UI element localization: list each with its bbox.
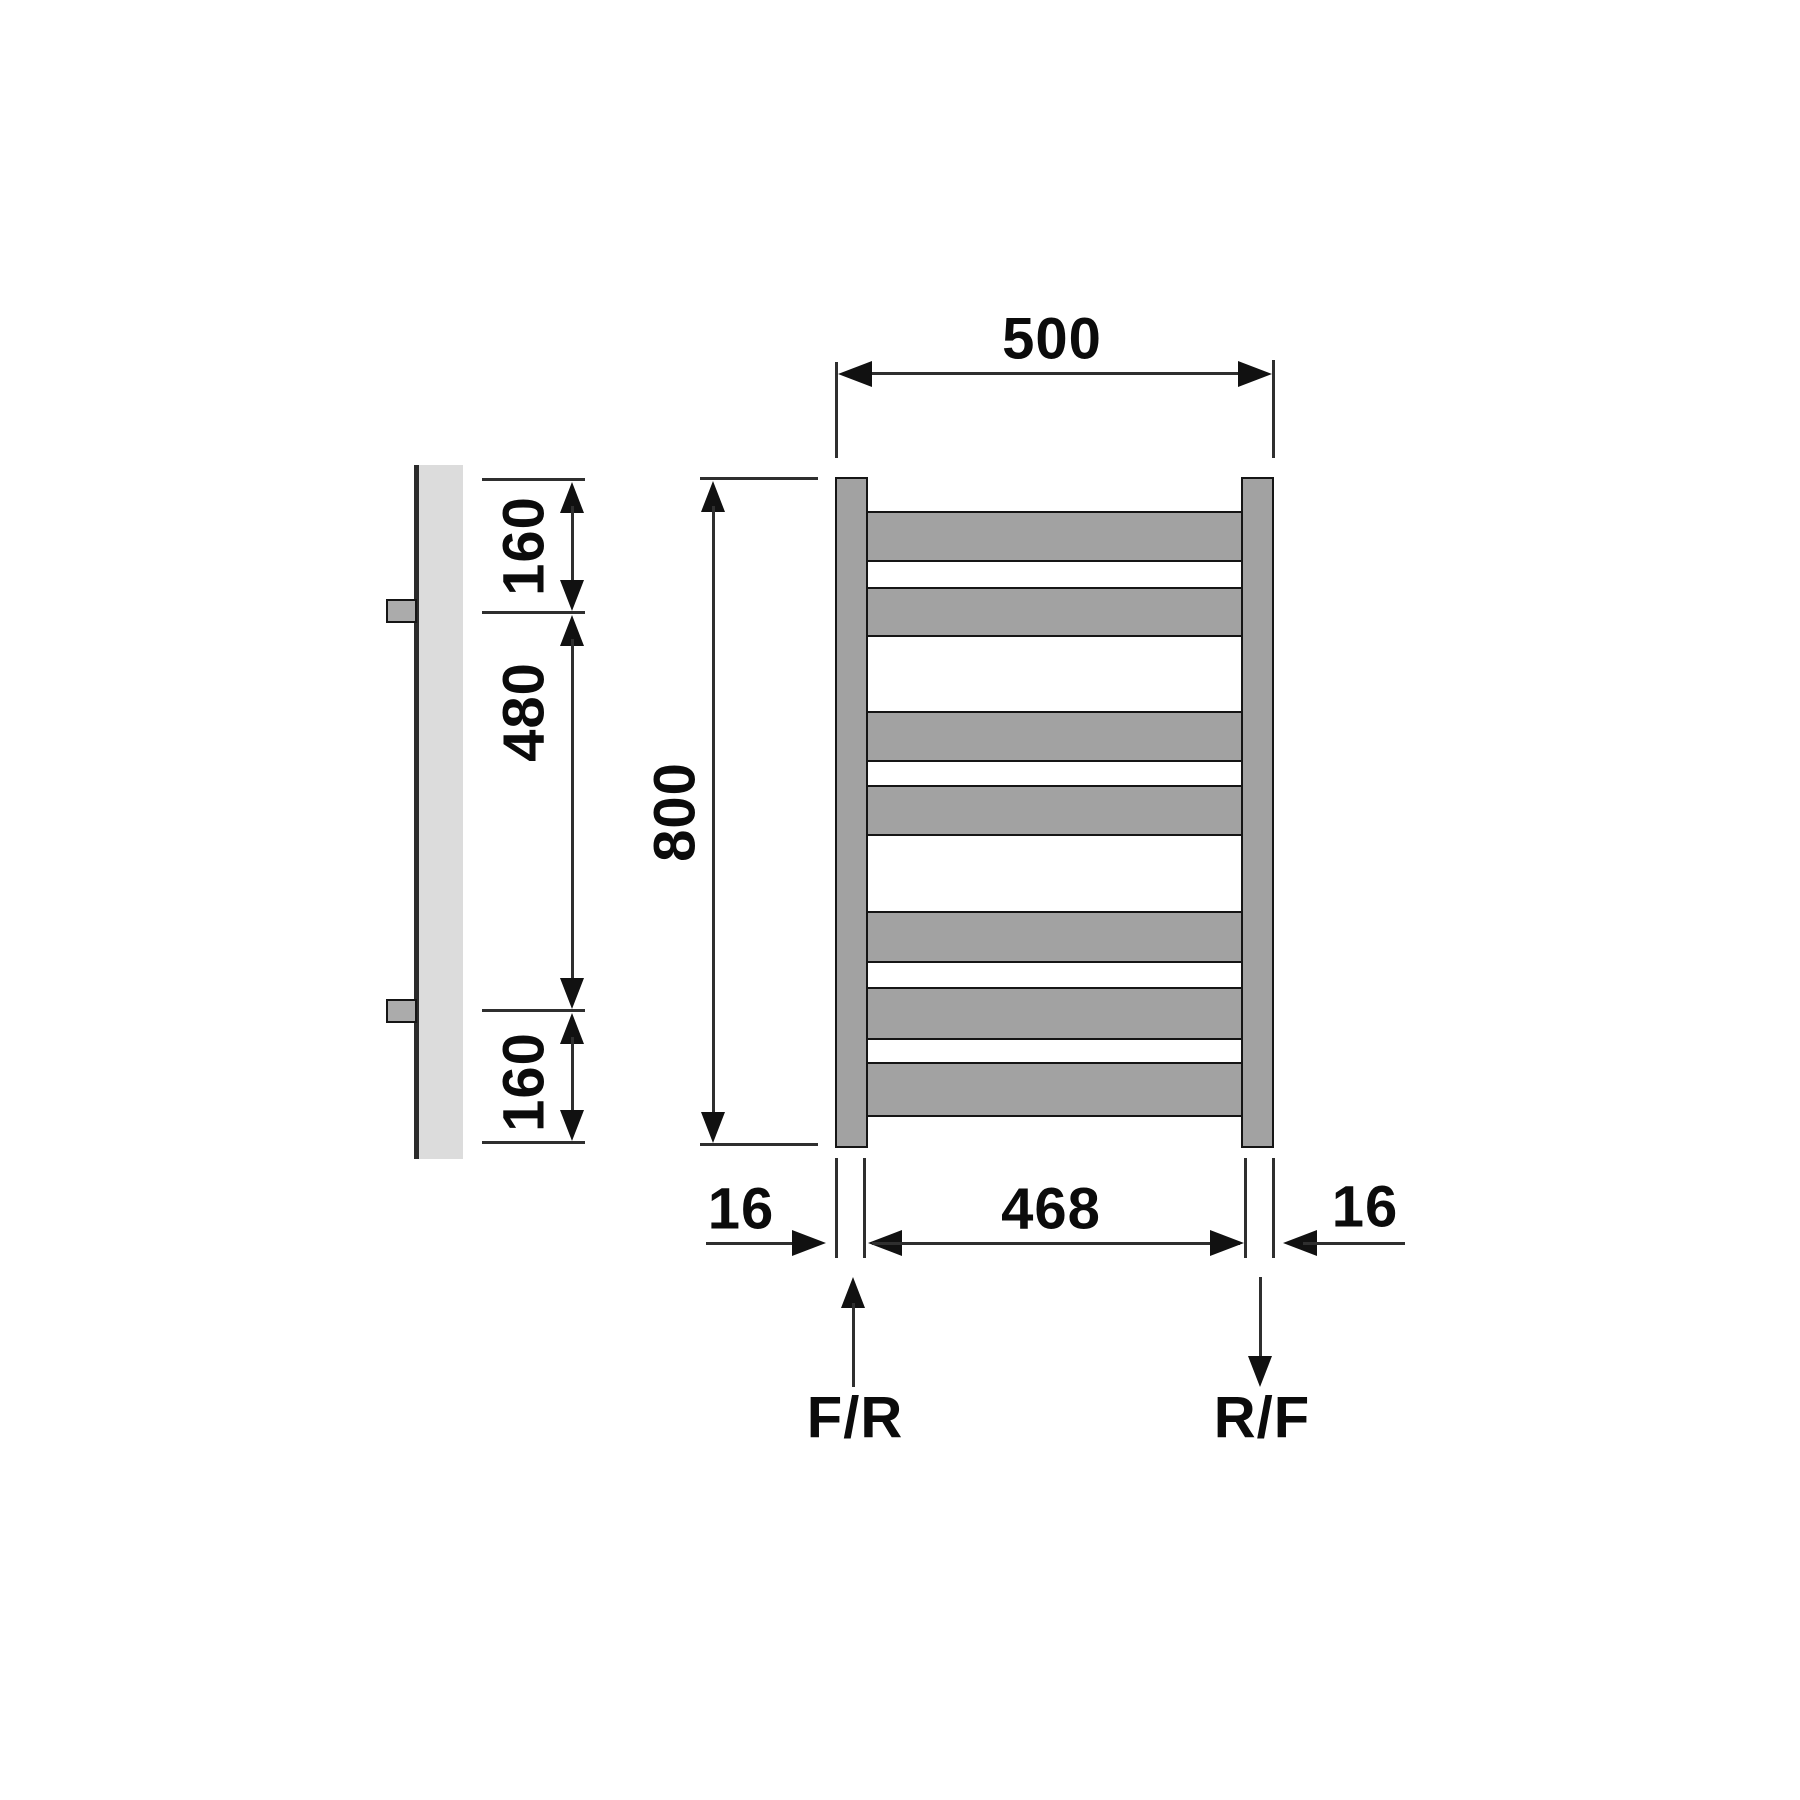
rung — [866, 711, 1243, 762]
extension-line — [1272, 1158, 1275, 1258]
extension-line — [863, 1158, 866, 1258]
dim-16-right-label: 16 — [1332, 1174, 1399, 1241]
rung — [866, 785, 1243, 836]
dim-tick — [700, 1143, 818, 1146]
dim-arrow-shaft — [712, 506, 715, 1118]
dim-arrow-shaft — [571, 1037, 574, 1113]
return-arrow-shaft — [1259, 1277, 1262, 1361]
flow-left-label: F/R — [807, 1385, 903, 1452]
radiator-dimension-drawing: 160 480 160 500 — [0, 0, 1800, 1800]
dim-tick — [482, 478, 585, 481]
dim-160-top-label: 160 — [491, 496, 558, 596]
arrowhead-right-icon — [1210, 1230, 1244, 1256]
arrowhead-down-icon — [560, 978, 584, 1009]
rung — [866, 587, 1243, 637]
dim-16-left-label: 16 — [708, 1176, 775, 1243]
dim-arrow-shaft — [571, 639, 574, 985]
arrowhead-down-icon — [560, 1110, 584, 1141]
left-rail — [835, 477, 868, 1148]
flow-arrow-shaft — [852, 1303, 855, 1387]
arrowhead-down-icon — [1248, 1356, 1272, 1387]
rung — [866, 987, 1243, 1040]
flow-right-label: R/F — [1214, 1385, 1310, 1452]
arrowhead-down-icon — [701, 1112, 725, 1143]
dim-arrow-shaft — [571, 506, 574, 588]
dim-500-label: 500 — [1002, 306, 1102, 373]
arrowhead-right-icon — [1238, 361, 1272, 387]
extension-line — [1272, 360, 1275, 458]
rung — [866, 911, 1243, 963]
arrowhead-down-icon — [560, 580, 584, 611]
dim-480-label: 480 — [491, 662, 558, 762]
wall-bracket-bottom — [386, 999, 417, 1023]
arrowhead-right-icon — [792, 1230, 826, 1256]
extension-line — [1244, 1158, 1247, 1258]
extension-line — [835, 1158, 838, 1258]
right-rail — [1241, 477, 1274, 1148]
dim-tick — [482, 1009, 585, 1012]
dim-468-label: 468 — [1001, 1176, 1101, 1243]
dim-800-label: 800 — [642, 762, 709, 862]
dim-tick — [482, 1141, 585, 1144]
arrowhead-left-icon — [838, 361, 872, 387]
wall-bracket-top — [386, 599, 417, 623]
dim-160-bottom-label: 160 — [491, 1032, 558, 1132]
rung — [866, 511, 1243, 562]
dim-tick — [700, 477, 818, 480]
side-profile-bar — [419, 465, 463, 1159]
rung — [866, 1062, 1243, 1117]
dim-line — [1303, 1242, 1405, 1245]
dim-tick — [482, 611, 585, 614]
